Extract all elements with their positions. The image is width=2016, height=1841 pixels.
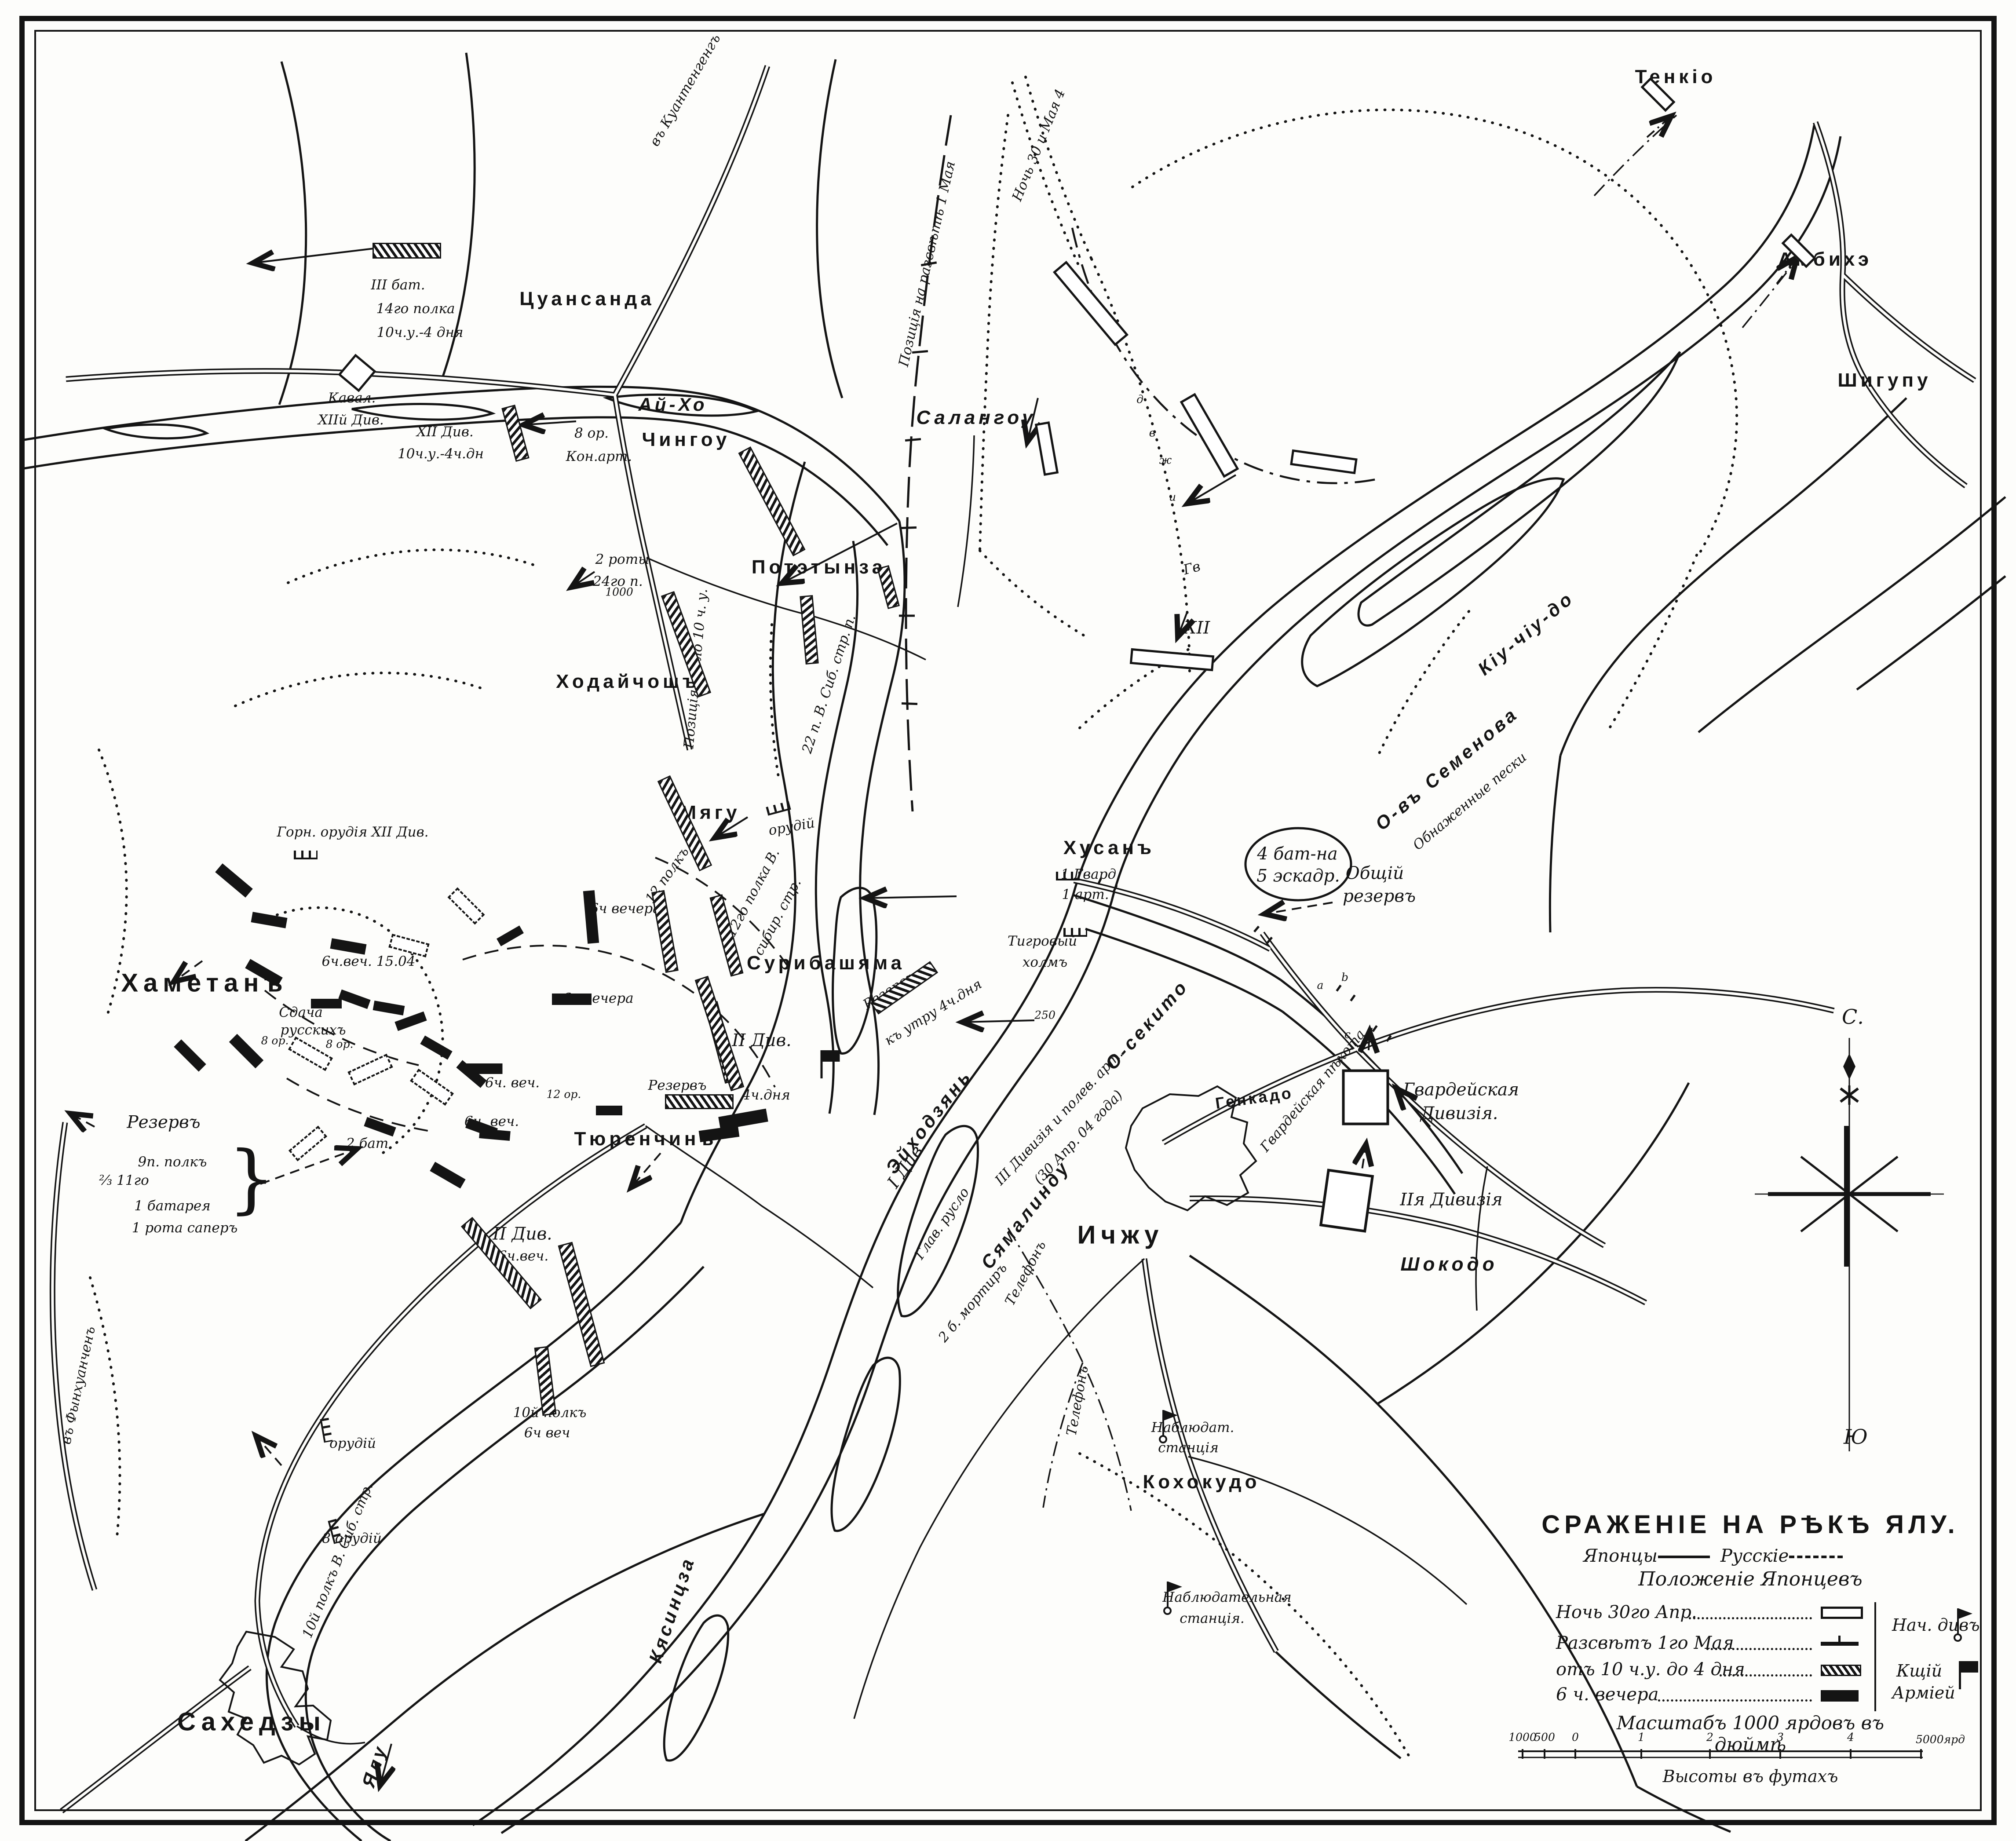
map-label: 1 батарея (134, 1198, 211, 1214)
map-label: Кохокудо (1143, 1471, 1260, 1493)
map-label: XII Див. (416, 424, 473, 440)
russians-line-sample (1789, 1556, 1843, 1558)
unit-symbol-bt (294, 851, 318, 859)
tick-bar-symbol (1821, 1642, 1859, 1646)
map-label: Дивизія. (1421, 1104, 1498, 1124)
legend-subtitle: Положеніе Японцевъ (1579, 1568, 1922, 1590)
unit-symbol-bt (1056, 872, 1080, 880)
map-label: ⅔ 11го (99, 1173, 149, 1188)
map-label: a (1317, 979, 1324, 992)
map-label: Салангоу (917, 407, 1037, 429)
legend-leader (1689, 1617, 1812, 1619)
map-label: Сахедзы (177, 1707, 326, 1737)
map-label: b (1341, 971, 1348, 984)
map-label: 2 бат. (346, 1136, 393, 1151)
map-label: XIIй Див. (318, 412, 383, 428)
legend: СРАЖЕНІЕ НА РѢКѢ ЯЛУ. Японцы Русскіе Пол… (1513, 1506, 1983, 1792)
map-label: III бат. (371, 277, 425, 293)
map-label: Ходайчошъ (556, 671, 700, 693)
map-label: II Див. (732, 1031, 791, 1051)
map-label: Чингоу (642, 429, 730, 451)
legend-row-label: отъ 10 ч.у. до 4 дня (1556, 1659, 1745, 1680)
unit-symbol-sb (596, 1106, 622, 1115)
map-label: 6ч веч (524, 1425, 570, 1441)
map-label: Тюренчинъ (574, 1128, 717, 1150)
unit-symbol-ht (373, 243, 441, 259)
map-label: d (1366, 1026, 1373, 1039)
map-label: Общій (1346, 864, 1404, 884)
map-label: Ай-Хо (638, 394, 707, 415)
map-label: 6ч. веч. (485, 1075, 540, 1091)
map-label: 6ч вечера (590, 901, 661, 917)
map-label: 250 (1034, 1009, 1055, 1022)
unit-symbol-sb (552, 994, 592, 1005)
unit-symbol-fo (1167, 1582, 1169, 1607)
map-label: Сурибашяма (747, 952, 905, 974)
unit-symbol-sb (311, 999, 342, 1008)
map-label: IIя Дивизія (1400, 1190, 1502, 1210)
legend-bracket (1874, 1602, 1876, 1711)
map-label: станція (1158, 1440, 1219, 1456)
map-label: Резервъ (648, 1078, 706, 1093)
map-label: русскихъ (280, 1022, 346, 1038)
map-label: XII (1184, 618, 1210, 638)
map-label: 4 бат-на (1257, 844, 1337, 864)
unit-symbol-fs (821, 1050, 823, 1078)
map-label: Ичжу (1077, 1220, 1164, 1250)
map-page: С. Ю ТенкіоАмбихэШигупуЦуансандаАй-ХоЧин… (0, 0, 2016, 1841)
map-label: Цуансанда (519, 288, 655, 310)
map-label: Горн. орудія XII Див. (277, 824, 428, 840)
hatch-bar-symbol (1821, 1665, 1861, 1676)
legend-army-commander-label2: Арміей (1892, 1683, 1955, 1702)
map-label: 9п. полкъ (138, 1154, 207, 1170)
map-label: c (1344, 1028, 1351, 1041)
legend-japanese-label: Японцы (1583, 1546, 1658, 1566)
map-label: 4ч.дня (742, 1087, 790, 1103)
map-label: 14го полка (376, 301, 455, 317)
unit-symbol-vt (899, 615, 915, 617)
map-label: в (1149, 427, 1156, 439)
heights-note: Высоты въ футахъ (1614, 1767, 1887, 1786)
map-label: } (228, 1135, 275, 1222)
map-label: 6ч.веч. 15.04 (322, 953, 416, 969)
map-label: Кон.арт. (566, 449, 632, 464)
map-label: 10ч.у.-4 дня (376, 325, 463, 340)
map-label: Хусанъ (1063, 837, 1155, 859)
map-label: 12 ор. (547, 1088, 581, 1101)
map-label: Шигупу (1837, 369, 1931, 391)
hollow-bar-symbol (1821, 1607, 1863, 1619)
map-label: 1 арт. (1062, 887, 1109, 902)
map-label: д (1136, 393, 1143, 406)
map-label: II Див. (493, 1224, 552, 1244)
legend-russians-label: Русскіе (1720, 1546, 1789, 1566)
army-flag-icon (1959, 1661, 1961, 1689)
map-label: 8 ор. (261, 1034, 289, 1047)
legend-leader (1706, 1648, 1812, 1650)
unit-symbol-fo (1162, 1410, 1164, 1436)
legend-row-label: 6 ч. вечера (1556, 1684, 1658, 1705)
legend-leader (1720, 1674, 1812, 1677)
map-label: холмъ (1023, 954, 1067, 970)
unit-symbol-sq (1319, 1169, 1374, 1233)
map-label: Кавал. (328, 390, 376, 406)
map-title: СРАЖЕНІЕ НА РѢКѢ ЯЛУ. (1530, 1510, 1970, 1539)
map-label: 2 роты (595, 552, 650, 567)
scale-title: Масштабъ 1000 ярдовъ въ дюймѣ (1579, 1712, 1922, 1755)
map-label: Резервъ (127, 1113, 200, 1132)
division-flag-icon (1957, 1608, 1959, 1634)
map-label: и (1169, 491, 1176, 504)
solid-bar-symbol (1821, 1690, 1859, 1702)
unit-symbol-bt (1063, 928, 1087, 937)
compass-south-label: Ю (1844, 1425, 1868, 1449)
japanese-line-sample (1658, 1556, 1710, 1558)
map-label: 8 ор. (326, 1038, 354, 1051)
unit-symbol-sq (1342, 1070, 1389, 1125)
unit-symbol-ht (665, 1094, 734, 1109)
map-label: ж (1159, 454, 1172, 467)
map-label: Потэтынза (752, 556, 886, 578)
map-label: станція. (1180, 1611, 1245, 1626)
map-label: 24го п. (593, 573, 643, 589)
map-label: резервъ (1343, 887, 1416, 906)
legend-leader (1658, 1699, 1812, 1702)
legend-row-label: Разсвѣтъ 1го Мая (1556, 1633, 1734, 1653)
map-label: орудій (329, 1436, 376, 1451)
map-label: 1 рота саперъ (132, 1220, 237, 1236)
legend-army-commander-label1: Кщій (1896, 1661, 1942, 1680)
legend-row-label: Ночь 30го Апр. (1556, 1602, 1697, 1622)
map-label: Шокодо (1400, 1253, 1497, 1275)
map-label: Гвардейская (1403, 1080, 1519, 1100)
map-label: 10ч.у.-4ч.дн (398, 446, 484, 462)
map-label: 8 ор. (574, 425, 609, 441)
map-label: 5 эскадр. (1256, 866, 1340, 886)
compass-north-label: С. (1842, 1005, 1864, 1029)
